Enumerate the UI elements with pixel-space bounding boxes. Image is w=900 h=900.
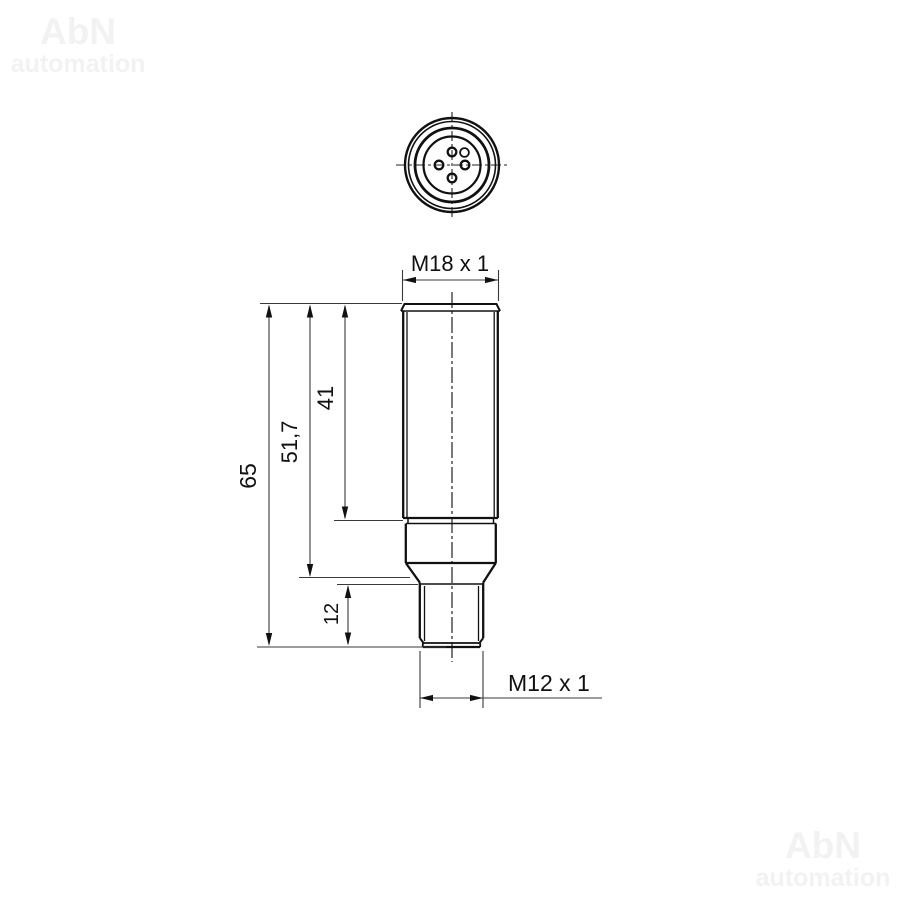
dim-label-41: 41: [313, 386, 338, 410]
dim-m12: M12 x 1: [420, 651, 602, 708]
arrowhead-right: [485, 277, 498, 283]
arrowhead-up: [307, 305, 313, 318]
front-view-sensor-body: [401, 292, 500, 662]
dim-label-m18: M18 x 1: [411, 251, 489, 276]
dim-label-12: 12: [321, 603, 343, 625]
arrowhead-right: [470, 695, 483, 701]
taper-right: [483, 563, 496, 583]
dim-65: 65: [235, 305, 272, 647]
arrowhead-up: [345, 585, 351, 598]
connector-right-chamfer: [480, 638, 484, 643]
arrowhead-up: [342, 305, 348, 318]
arrowhead-down: [345, 633, 351, 646]
dimension-annotations: M18 x 1 65 51,7 41: [235, 251, 602, 708]
watermark-subtitle: automation: [748, 866, 898, 891]
coding-notch-circle: [460, 148, 469, 157]
top-view-connector-face: [396, 112, 508, 218]
dim-12: 12: [321, 585, 418, 646]
taper-left: [406, 563, 420, 583]
arrowhead-down: [266, 633, 272, 646]
watermark-bottom-right: AbN automation: [748, 827, 898, 891]
top-cap-outline: [401, 304, 500, 311]
arrowhead-up: [266, 305, 272, 318]
arrowhead-down: [307, 564, 313, 577]
dim-m18: M18 x 1: [403, 251, 499, 301]
watermark-brand: AbN: [748, 827, 898, 864]
dim-label-65: 65: [235, 463, 261, 489]
arrowhead-left: [420, 695, 433, 701]
dim-51-7: 51,7: [277, 305, 410, 578]
dim-label-51-7: 51,7: [277, 421, 302, 464]
connector-left-chamfer: [420, 638, 424, 643]
dim-label-m12: M12 x 1: [508, 670, 590, 696]
arrowhead-left: [403, 277, 416, 283]
dim-41: 41: [313, 305, 403, 521]
technical-drawing-canvas: M18 x 1 65 51,7 41: [0, 0, 900, 900]
arrowhead-down: [342, 507, 348, 520]
